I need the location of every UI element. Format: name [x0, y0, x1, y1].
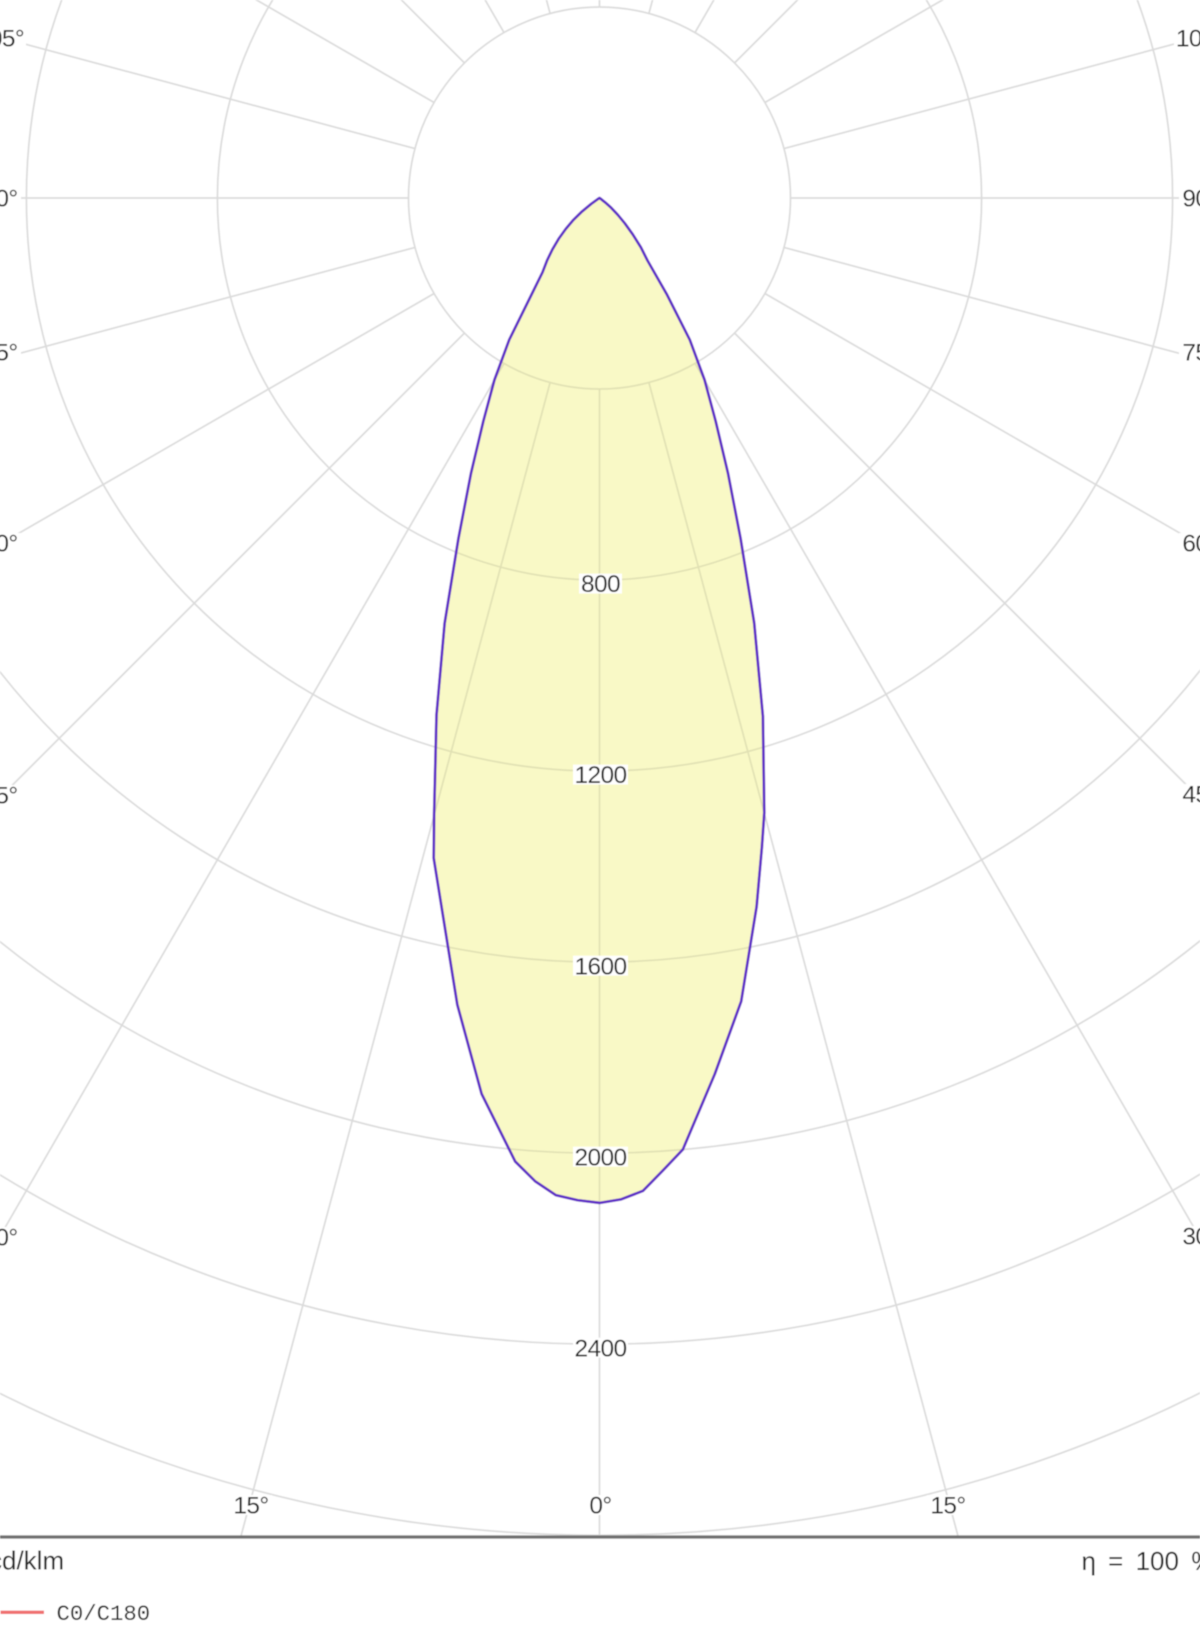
svg-text:15°: 15° — [930, 1493, 965, 1520]
svg-text:2000: 2000 — [574, 1144, 626, 1171]
svg-text:η = 100 %: η = 100 % — [1082, 1546, 1200, 1576]
svg-text:60°: 60° — [0, 531, 18, 558]
svg-text:800: 800 — [581, 571, 620, 598]
svg-text:105°: 105° — [1176, 26, 1200, 53]
svg-text:45°: 45° — [1182, 782, 1200, 809]
svg-text:2400: 2400 — [574, 1335, 626, 1362]
svg-text:cd/klm: cd/klm — [0, 1546, 64, 1576]
svg-text:30°: 30° — [0, 1225, 18, 1252]
svg-text:75°: 75° — [1182, 340, 1200, 367]
svg-text:1200: 1200 — [574, 762, 626, 789]
svg-text:105°: 105° — [0, 26, 24, 53]
svg-text:30°: 30° — [1182, 1224, 1200, 1251]
svg-text:C0/C180: C0/C180 — [57, 1601, 151, 1627]
svg-text:90°: 90° — [1182, 186, 1200, 213]
svg-text:45°: 45° — [0, 783, 18, 810]
svg-text:0°: 0° — [589, 1493, 611, 1520]
svg-text:90°: 90° — [0, 186, 18, 213]
svg-text:75°: 75° — [0, 340, 18, 367]
svg-text:1600: 1600 — [574, 953, 626, 980]
svg-text:15°: 15° — [233, 1493, 268, 1520]
svg-text:60°: 60° — [1182, 531, 1200, 558]
